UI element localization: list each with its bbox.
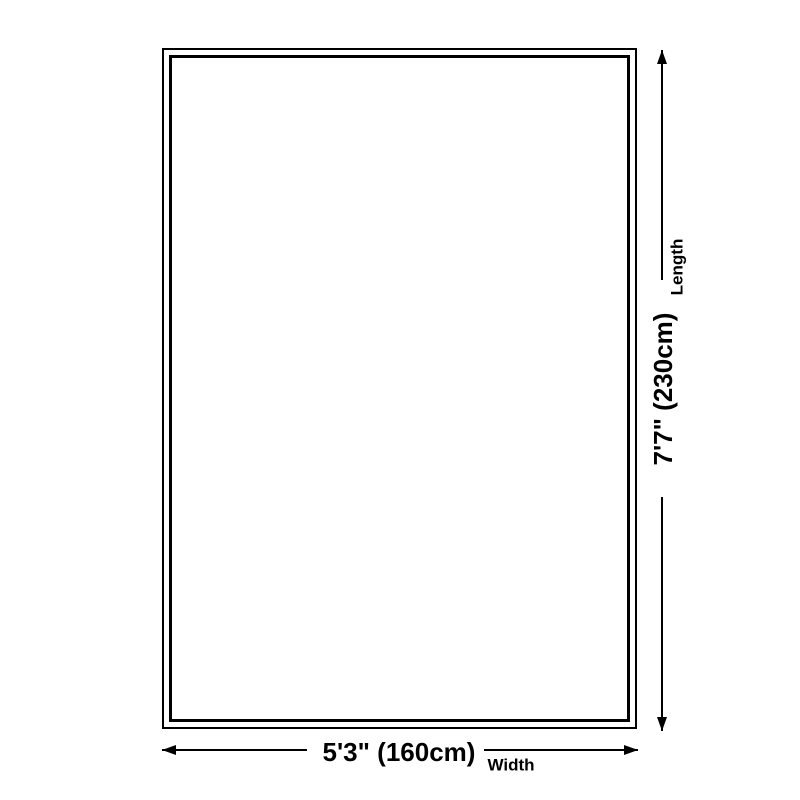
length-dimension-line-lower xyxy=(661,497,663,731)
width-dimension-line-right xyxy=(484,749,638,751)
width-value-label: 5'3" (160cm) xyxy=(323,739,476,765)
width-axis-label: Width xyxy=(487,757,534,774)
width-dimension-line-left xyxy=(162,749,307,751)
length-axis-label: Length xyxy=(669,239,686,296)
arrow-up-icon xyxy=(657,50,667,64)
arrow-down-icon xyxy=(657,717,667,731)
length-dimension-line-upper xyxy=(661,50,663,280)
rug-outline-outer xyxy=(162,48,637,729)
rug-outline-inner xyxy=(169,55,630,722)
arrow-right-icon xyxy=(624,745,638,755)
rug-dimension-diagram: Length 7'7" (230cm) 5'3" (160cm) Width xyxy=(0,0,800,800)
length-value-label: 7'7" (230cm) xyxy=(650,313,676,466)
arrow-left-icon xyxy=(162,745,176,755)
